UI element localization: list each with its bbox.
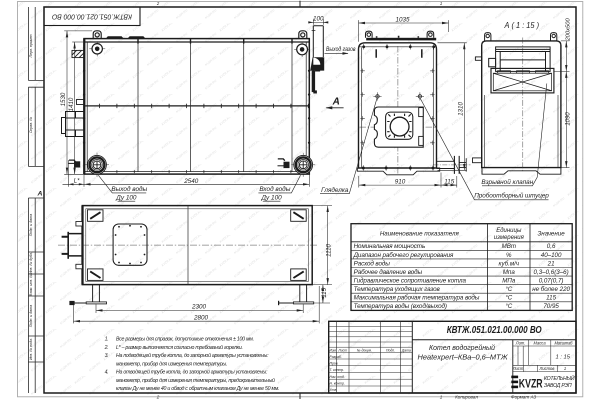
svg-text:100: 100	[313, 16, 324, 23]
svg-text:Расход воды: Расход воды	[354, 259, 391, 267]
svg-text:Подп.: Подп.	[386, 349, 395, 353]
svg-text:2: 2	[156, 394, 160, 399]
svg-text:Формат А3: Формат А3	[511, 394, 537, 399]
svg-text:115: 115	[322, 287, 328, 297]
svg-text:Heatexpert–КВа–0,6–МТЖ: Heatexpert–КВа–0,6–МТЖ	[418, 352, 509, 361]
svg-text:1: 1	[440, 1, 442, 6]
svg-text:Т. контр.: Т. контр.	[330, 368, 345, 372]
svg-text:3.: 3.	[105, 353, 109, 359]
svg-text:А: А	[37, 191, 43, 198]
svg-text:А: А	[332, 97, 340, 108]
svg-text:МПа: МПа	[502, 278, 516, 285]
svg-text:Температура воды (вход/выход): Температура воды (вход/выход)	[354, 302, 447, 310]
svg-text:Температура уходящих газов: Температура уходящих газов	[354, 285, 441, 293]
svg-text:Пробоотборный штуцер: Пробоотборный штуцер	[474, 191, 549, 199]
svg-text:°С: °С	[505, 295, 512, 302]
svg-text:1035: 1035	[395, 16, 410, 23]
svg-text:Номинальная мощность: Номинальная мощность	[354, 243, 426, 250]
svg-text:0,6: 0,6	[547, 243, 556, 250]
svg-text:не более 220: не более 220	[532, 286, 570, 293]
svg-text:%: %	[506, 252, 512, 259]
svg-text:№ докум.: № докум.	[357, 349, 372, 353]
svg-text:Ду 100: Ду 100	[260, 195, 282, 202]
svg-text:Единицы: Единицы	[496, 228, 522, 234]
svg-text:Лит.: Лит.	[515, 341, 526, 346]
svg-text:1090: 1090	[566, 112, 572, 126]
svg-text:Диапазон рабочего регулировани: Диапазон рабочего регулирования	[353, 251, 454, 259]
svg-text:910: 910	[395, 179, 406, 186]
svg-text:Взрывной клапан: Взрывной клапан	[481, 178, 533, 186]
svg-text:°С: °С	[505, 303, 512, 310]
svg-text:А ( 1 : 15 ): А ( 1 : 15 )	[504, 20, 539, 30]
svg-text:Все размеры для справок, допус: Все размеры для справок, допустимые откл…	[116, 337, 254, 343]
svg-text:Утв.: Утв.	[330, 388, 338, 392]
svg-text:Рабочее давление воды: Рабочее давление воды	[354, 268, 423, 276]
svg-text:Нач. отд.: Нач. отд.	[330, 375, 345, 379]
svg-text:Выход воды: Выход воды	[111, 185, 147, 193]
svg-text:70/95: 70/95	[543, 303, 559, 310]
svg-text:2540: 2540	[183, 178, 199, 185]
svg-text:Вход воды: Вход воды	[259, 185, 290, 193]
svg-text:KVZR: KVZR	[519, 377, 543, 391]
svg-text:200х500: 200х500	[566, 18, 572, 42]
svg-text:Инв. № дубл.: Инв. № дубл.	[29, 252, 33, 274]
svg-text:Копировал: Копировал	[455, 394, 478, 399]
svg-text:Разраб.: Разраб.	[330, 355, 342, 359]
svg-text:КВТЖ.051.021.00.000 ВО: КВТЖ.051.021.00.000 ВО	[447, 325, 542, 336]
svg-text:Котел водогрейный: Котел водогрейный	[429, 343, 496, 352]
svg-text:Максимальная рабочая температу: Максимальная рабочая температура воды	[354, 294, 480, 302]
svg-text:МВт: МВт	[502, 243, 516, 250]
svg-text:Изм: Изм	[330, 349, 337, 353]
svg-text:КВТЖ.051.021.00.000 ВО: КВТЖ.051.021.00.000 ВО	[51, 12, 132, 19]
svg-text:°С: °С	[505, 286, 512, 293]
svg-text:0,3–0,6(3–6): 0,3–0,6(3–6)	[534, 269, 569, 276]
svg-text:1: 1	[564, 366, 566, 371]
svg-text:Лист: Лист	[512, 366, 524, 371]
svg-text:Лист: Лист	[337, 349, 347, 353]
svg-text:Масса: Масса	[534, 341, 547, 346]
svg-text:Гидравлическое сопротивление к: Гидравлическое сопротивление котла	[354, 277, 467, 285]
svg-text:1.: 1.	[105, 337, 109, 343]
svg-text:Масштаб: Масштаб	[555, 341, 574, 346]
svg-text:1310: 1310	[457, 102, 464, 116]
svg-text:манометр, прибор для измерения: манометр, прибор для измерения температу…	[116, 361, 227, 367]
svg-text:Ду 100: Ду 100	[115, 195, 137, 202]
svg-text:Н. контр.: Н. контр.	[330, 382, 345, 386]
svg-text:40–100: 40–100	[541, 252, 562, 259]
svg-text:На подводящей трубе котла, до: На подводящей трубе котла, до запорной а…	[116, 352, 269, 359]
svg-text:2300: 2300	[191, 304, 207, 311]
svg-text:Выход газов: Выход газов	[326, 46, 356, 53]
svg-text:Дата: Дата	[401, 349, 411, 353]
svg-text:Подп. и дата: Подп. и дата	[29, 214, 33, 237]
svg-text:0,07(0,7): 0,07(0,7)	[539, 278, 564, 285]
svg-text:1 : 15: 1 : 15	[555, 355, 570, 361]
svg-text:1110: 1110	[326, 243, 333, 256]
svg-text:L*: L*	[74, 179, 80, 185]
svg-text:Гляделка: Гляделка	[321, 186, 349, 194]
svg-text:куб.м/ч: куб.м/ч	[499, 260, 520, 267]
svg-text:На отводящей трубе котла, до з: На отводящей трубе котла, до запорной ар…	[116, 369, 268, 376]
svg-text:L* – размер выполняется соглас: L* – размер выполняется согласно требова…	[116, 344, 243, 351]
svg-text:115: 115	[546, 295, 556, 302]
svg-text:ЗАВОД РЭП: ЗАВОД РЭП	[544, 383, 572, 389]
svg-text:манометр, прибор для измерения: манометр, прибор для измерения температу…	[116, 377, 275, 384]
svg-text:Перв. примен.: Перв. примен.	[29, 34, 33, 58]
svg-text:Значение: Значение	[538, 230, 566, 237]
svg-text:1530: 1530	[60, 92, 67, 106]
svg-text:1410: 1410	[68, 97, 75, 111]
svg-text:клапан Ду не менее 40 и обвод: клапан Ду не менее 40 и обвод с обратным…	[116, 386, 279, 392]
svg-text:Взам. инв. №: Взам. инв. №	[29, 274, 33, 296]
svg-text:4.: 4.	[105, 370, 109, 376]
svg-text:Пров.: Пров.	[330, 361, 339, 365]
svg-text:2800: 2800	[193, 315, 209, 322]
svg-text:Справ. №: Справ. №	[29, 117, 33, 133]
svg-text:измерения: измерения	[494, 235, 525, 241]
svg-text:КОТЕЛЬНЫЙ: КОТЕЛЬНЫЙ	[544, 374, 575, 382]
svg-text:Мпа: Мпа	[503, 269, 516, 276]
svg-text:Листов: Листов	[539, 366, 556, 371]
svg-text:2.: 2.	[104, 345, 109, 351]
svg-text:Инв. № подл.: Инв. № подл.	[29, 338, 33, 360]
svg-text:Наименование показателя: Наименование показателя	[380, 230, 460, 237]
svg-text:21: 21	[547, 260, 555, 267]
svg-text:1: 1	[440, 394, 443, 399]
svg-text:Подп. и дата: Подп. и дата	[29, 305, 33, 328]
svg-text:115: 115	[444, 179, 455, 186]
